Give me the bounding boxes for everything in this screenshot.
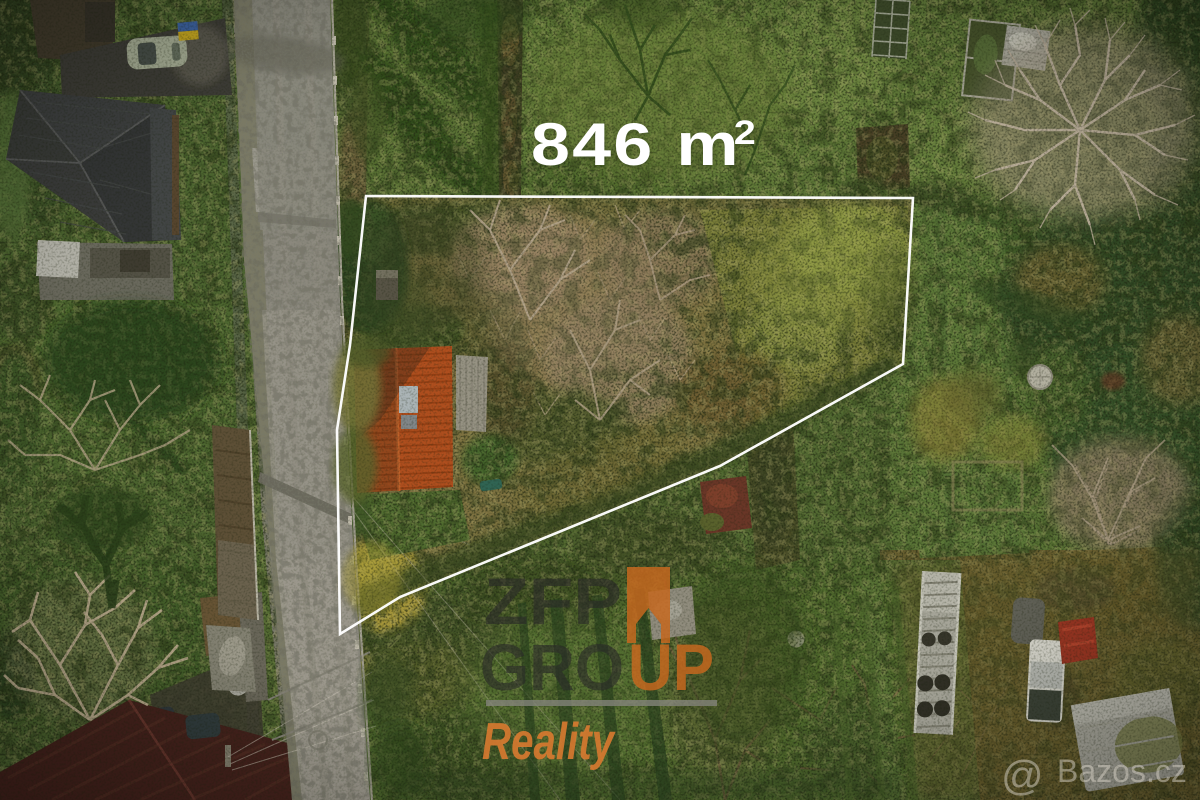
svg-text:846 m: 846 m (531, 111, 741, 178)
svg-text:Bazos.cz: Bazos.cz (1057, 753, 1187, 789)
svg-text:ZFP: ZFP (484, 564, 622, 638)
svg-text:Reality: Reality (482, 713, 616, 771)
svg-text:GRO: GRO (480, 630, 624, 704)
svg-text:@: @ (1001, 752, 1044, 799)
svg-text:2: 2 (734, 114, 756, 152)
svg-text:UP: UP (628, 630, 714, 704)
